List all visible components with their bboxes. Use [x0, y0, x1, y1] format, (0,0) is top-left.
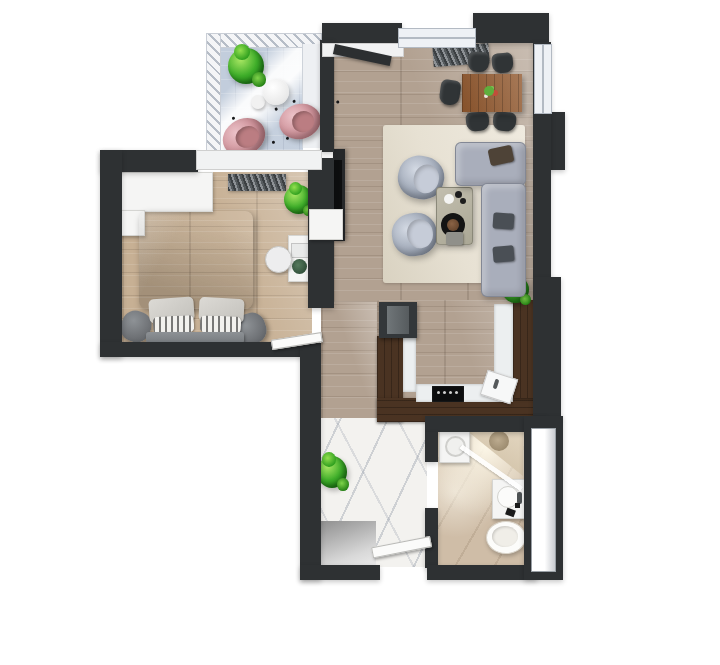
table-cup-1	[455, 191, 462, 198]
dining-table-flowers	[484, 86, 494, 96]
table-cup-2	[460, 198, 466, 204]
living-top-window	[398, 28, 476, 48]
tray-bowl	[447, 219, 459, 231]
cooktop	[432, 386, 464, 402]
wall-bathroom-bottom	[427, 565, 537, 580]
bed-duvet	[139, 211, 253, 309]
wall-hall-bottom	[300, 565, 380, 580]
sofa-pillow-3	[492, 245, 514, 263]
sofa-body	[481, 183, 526, 297]
desk-plant	[292, 259, 307, 274]
wardrobe-main	[113, 172, 213, 212]
toilet-seat	[492, 526, 518, 547]
dining-chair-4	[492, 111, 517, 132]
wall-hall-left	[300, 343, 321, 580]
table-box	[446, 232, 463, 245]
living-right-window	[534, 44, 552, 114]
cooktop-burners	[437, 391, 440, 394]
bed-pillow-front-right	[200, 315, 242, 333]
wall-top-right	[473, 13, 549, 43]
dining-chair-1	[467, 51, 489, 72]
bedroom-striped-rug	[228, 174, 286, 191]
wall-bedroom-left	[100, 150, 122, 357]
hallway-floor-mat	[320, 521, 376, 568]
table-dish	[444, 194, 454, 204]
wall-bathroom-left-upper	[425, 432, 438, 462]
worktop-left	[403, 336, 416, 392]
wall-right-lower	[533, 112, 551, 302]
shower-head	[489, 431, 509, 451]
bedroom-window-sill	[196, 150, 322, 170]
corridor-floor	[321, 302, 377, 420]
balcony-stool	[251, 95, 265, 109]
wall-right-pier	[549, 112, 565, 170]
fridge-front	[387, 306, 409, 334]
balcony-plant	[228, 48, 264, 84]
wall-top-left	[322, 23, 402, 43]
window-shaft	[531, 428, 556, 572]
sofa-pillow-2	[492, 212, 514, 229]
tv-screen	[334, 160, 342, 216]
balcony-railing-left	[206, 33, 221, 153]
hallway-plant	[317, 456, 347, 488]
floor-plan	[0, 0, 720, 665]
hallway-cabinet	[309, 209, 343, 240]
vanity-item-2	[515, 503, 520, 508]
balcony-round-table	[263, 79, 289, 105]
wall-kitchen-right-outer	[533, 277, 561, 420]
desk-chair	[265, 246, 292, 273]
